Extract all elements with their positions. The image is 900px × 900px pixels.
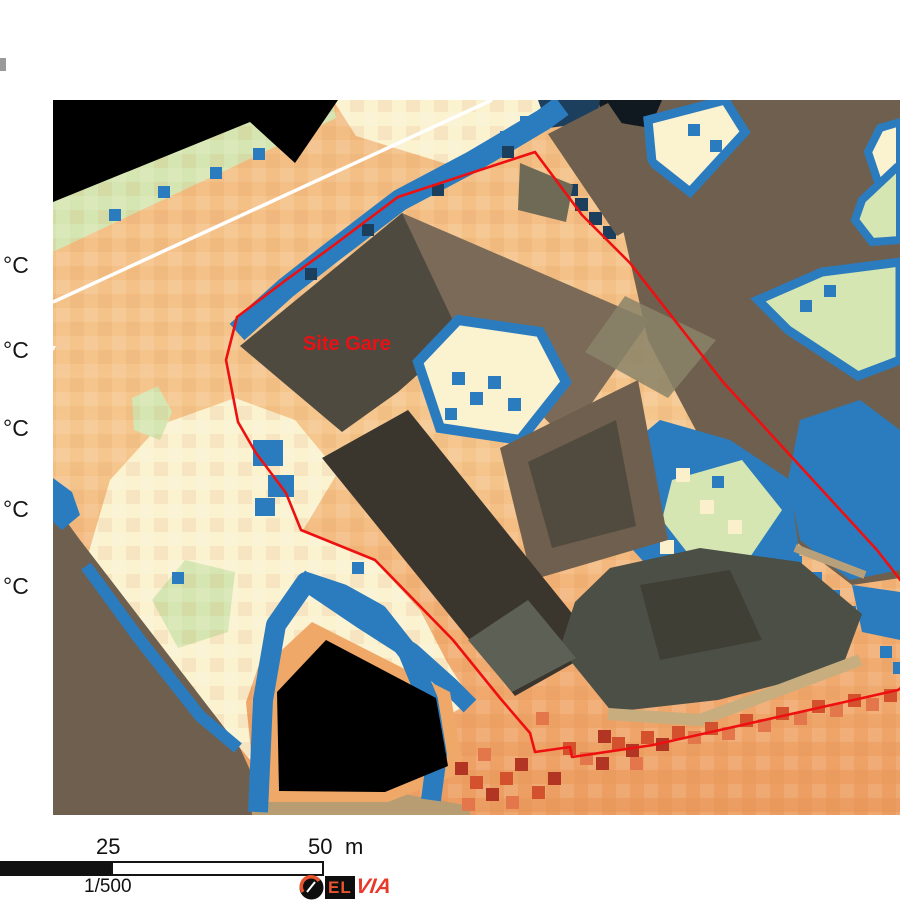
legend-cropped-mark (0, 58, 6, 71)
page: °C °C °C °C °C (0, 0, 900, 900)
thermal-map-canvas (53, 100, 900, 815)
elvia-logo-accent-text: VIA (354, 875, 392, 899)
site-label: Site Gare (303, 333, 391, 356)
scale-bar-end-tick: 50 (308, 834, 332, 860)
scale-bar-empty-segment (111, 861, 324, 876)
elvia-logo-icon (299, 875, 324, 900)
legend-unit-label: °C (3, 496, 29, 523)
legend-unit-label: °C (3, 573, 29, 600)
road-label-fragment: y (53, 340, 55, 363)
elvia-logo-text: EL (325, 876, 355, 899)
legend-unit-label: °C (3, 337, 29, 364)
scale-bar-unit: m (345, 834, 363, 860)
thermal-map: Site Gare y (53, 100, 900, 815)
legend-unit-label: °C (3, 252, 29, 279)
scale-ratio: 1/500 (84, 876, 132, 898)
legend-unit-label: °C (3, 415, 29, 442)
scale-bar-filled-segment (0, 861, 111, 876)
elvia-logo: EL VIA (299, 874, 391, 900)
scale-bar-mid-tick: 25 (96, 834, 120, 860)
